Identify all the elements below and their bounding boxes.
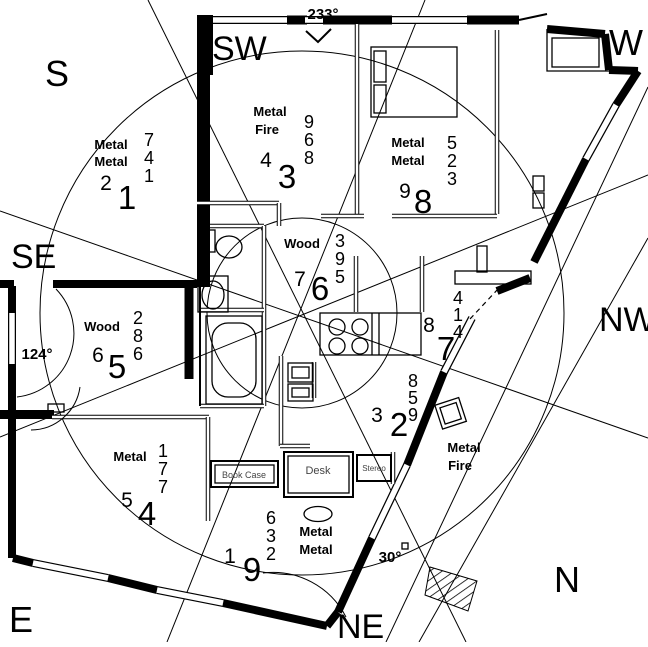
- star-number-large: 5: [108, 348, 126, 385]
- element-label: Metal: [391, 135, 424, 150]
- stove-burner: [329, 338, 345, 354]
- star-number: 6: [304, 130, 314, 150]
- direction-nw: NW: [599, 301, 648, 339]
- entry-door-arc: [17, 289, 74, 397]
- element-label: Metal: [299, 542, 332, 557]
- star-number: 3: [447, 169, 457, 189]
- bathtub: [206, 316, 262, 404]
- sector-center: Wood 3 9 5 7 6: [284, 231, 345, 307]
- facing-degree-top: 233°: [307, 6, 338, 23]
- star-number: 9: [335, 249, 345, 269]
- rug-oval: [304, 507, 332, 522]
- element-label: Fire: [255, 122, 279, 137]
- star-number: 2: [133, 308, 143, 328]
- terrace-object: [435, 398, 467, 430]
- element-label: Wood: [284, 236, 320, 251]
- stereo-label: Stereo: [362, 464, 386, 473]
- element-label: Metal: [94, 137, 127, 152]
- star-number-medium: 8: [423, 314, 435, 337]
- element-label: Fire: [448, 458, 472, 473]
- radiator: [533, 176, 544, 191]
- facing-direction-line: [386, 87, 648, 642]
- star-number: 3: [266, 526, 276, 546]
- star-number: 7: [144, 130, 154, 150]
- star-number: 9: [408, 405, 418, 425]
- direction-s: S: [45, 53, 69, 94]
- star-number: 3: [335, 231, 345, 251]
- appliance-door: [292, 388, 309, 397]
- bed-pillow: [374, 85, 386, 113]
- facing-degree-bottom: 30°: [379, 549, 402, 566]
- right-wall: [616, 71, 638, 105]
- facing-tick-mark: [306, 29, 331, 42]
- right-wall: [338, 538, 372, 612]
- star-number: 6: [266, 508, 276, 528]
- star-number: 1: [144, 166, 154, 186]
- sector-ne: Metal Metal 6 3 2 1 9: [224, 508, 332, 588]
- star-number-medium: 2: [100, 172, 112, 195]
- stairs: [425, 567, 477, 611]
- degree-marker: [402, 543, 408, 549]
- star-number-large: 2: [390, 406, 408, 443]
- star-number-medium: 6: [92, 344, 104, 367]
- sector-e: Metal 1 7 7 5 4: [113, 441, 168, 532]
- interior-walls: [52, 24, 497, 521]
- sector-se: Wood 2 8 6 6 5: [84, 308, 143, 385]
- star-number: 6: [133, 344, 143, 364]
- element-label: Metal: [113, 449, 146, 464]
- west-bay-window: [552, 38, 599, 67]
- direction-ne: NE: [337, 608, 384, 642]
- bed-pillow: [374, 51, 386, 82]
- star-number-medium: 9: [399, 180, 411, 203]
- toilet: [216, 236, 242, 258]
- balcony-wall-stub: [477, 246, 487, 272]
- star-number-medium: 3: [371, 404, 383, 427]
- direction-e: E: [9, 599, 33, 640]
- oven-door: [292, 367, 309, 378]
- right-wall: [534, 159, 586, 262]
- element-label: Metal: [447, 440, 480, 455]
- bottom-wall: [13, 558, 33, 563]
- direction-se: SE: [11, 238, 56, 276]
- door-opening: [519, 14, 547, 20]
- element-label: Metal: [299, 524, 332, 539]
- wall-stub: [0, 410, 54, 419]
- star-number: 2: [266, 544, 276, 564]
- sector-s: Metal Metal 7 4 1 2 1: [94, 130, 154, 216]
- element-label: Metal: [253, 104, 286, 119]
- star-number-large: 4: [138, 495, 156, 532]
- direction-w: W: [609, 22, 643, 63]
- desk-label: Desk: [305, 465, 331, 477]
- star-number-large: 1: [118, 179, 136, 216]
- direction-sw: SW: [212, 30, 267, 68]
- star-number-medium: 5: [121, 489, 133, 512]
- sector-sw: Metal Fire 9 6 8 4 3: [253, 104, 314, 195]
- star-number-large: 8: [414, 183, 432, 220]
- star-number: 2: [447, 151, 457, 171]
- facing-degree-left: 124°: [21, 346, 52, 363]
- star-number-large: 6: [311, 270, 329, 307]
- star-number: 7: [158, 477, 168, 497]
- element-label: Metal: [94, 154, 127, 169]
- stove-burner: [352, 319, 368, 335]
- bottom-wall: [223, 603, 327, 626]
- stove-burner: [352, 338, 368, 354]
- direction-n: N: [554, 559, 580, 600]
- star-number-large: 7: [437, 330, 455, 367]
- bathtub-inner: [212, 323, 256, 397]
- star-number: 8: [133, 326, 143, 346]
- bookcase-label: Book Case: [222, 470, 266, 480]
- ne-door-arc: [263, 572, 346, 617]
- sector-w: Metal Metal 5 2 3 9 8: [391, 133, 457, 220]
- furniture-labels: Desk Book Case Stereo: [222, 464, 386, 480]
- star-number: 9: [304, 112, 314, 132]
- furniture: [198, 47, 544, 611]
- star-number-medium: 4: [260, 149, 272, 172]
- star-number: 5: [447, 133, 457, 153]
- floor-plan-svg: S SW W SE NW E NE N 233° 124° 30° Metal …: [0, 0, 648, 642]
- element-label: Wood: [84, 319, 120, 334]
- room-door-arc: [31, 387, 80, 430]
- star-number-large: 9: [243, 551, 261, 588]
- star-number: 4: [144, 148, 154, 168]
- bottom-wall: [108, 578, 157, 590]
- balcony-door: [470, 289, 498, 319]
- flying-star-floor-plan: S SW W SE NW E NE N 233° 124° 30° Metal …: [0, 0, 648, 642]
- star-number-medium: 1: [224, 545, 236, 568]
- star-number: 8: [304, 148, 314, 168]
- star-number: 5: [335, 267, 345, 287]
- star-number: 1: [158, 441, 168, 461]
- element-label: Metal: [391, 153, 424, 168]
- star-number-medium: 7: [294, 268, 306, 291]
- star-number-large: 3: [278, 158, 296, 195]
- star-number: 7: [158, 459, 168, 479]
